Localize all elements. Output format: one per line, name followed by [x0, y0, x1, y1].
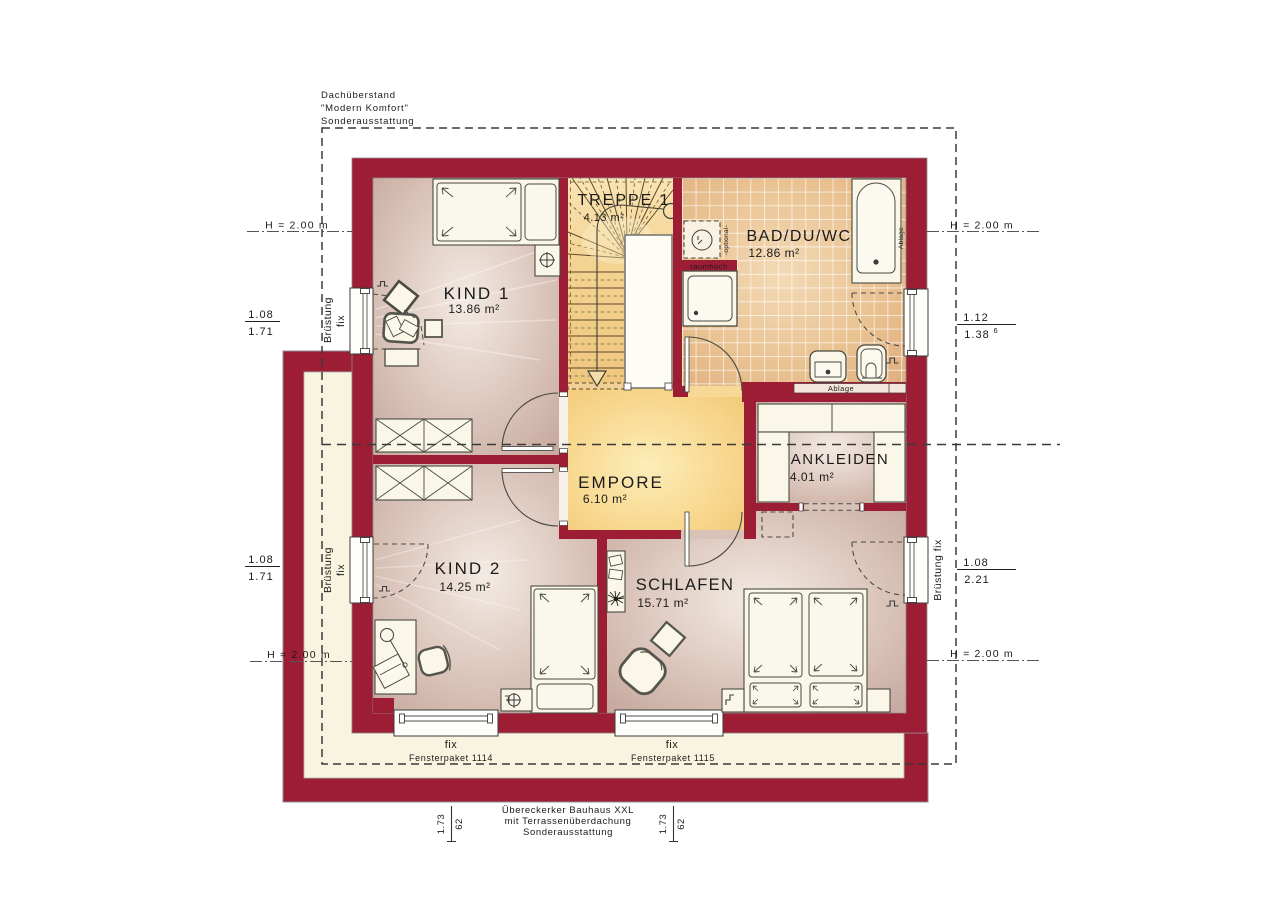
svg-text:Sonderausstattung: Sonderausstattung [523, 827, 613, 838]
svg-text:12.86 m²: 12.86 m² [748, 246, 799, 260]
svg-text:1.12: 1.12 [963, 312, 988, 324]
svg-text:ANKLEIDEN: ANKLEIDEN [791, 451, 890, 468]
svg-text:62: 62 [454, 818, 465, 830]
svg-text:fix: fix [335, 564, 347, 576]
svg-text:62: 62 [676, 818, 687, 830]
svg-text:4.01 m²: 4.01 m² [790, 470, 834, 484]
svg-text:4.13 m²: 4.13 m² [584, 212, 625, 224]
svg-text:Brüstung: Brüstung [322, 297, 334, 343]
svg-text:H = 2.00 m: H = 2.00 m [265, 220, 329, 232]
svg-text:1.08: 1.08 [248, 554, 273, 566]
svg-text:1.73: 1.73 [658, 814, 669, 835]
svg-text:2.21: 2.21 [964, 574, 989, 586]
svg-text:1.73: 1.73 [436, 814, 447, 835]
svg-text:raumhoch: raumhoch [690, 262, 727, 271]
svg-text:Ablage: Ablage [898, 227, 905, 249]
svg-text:H = 2.00 m: H = 2.00 m [950, 220, 1014, 232]
svg-text:1.08: 1.08 [248, 309, 273, 321]
svg-text:Übereckerker Bauhaus XXL: Übereckerker Bauhaus XXL [502, 805, 634, 816]
svg-text:fix: fix [666, 739, 679, 751]
svg-text:"Modern Komfort": "Modern Komfort" [321, 103, 409, 114]
svg-text:1.38: 1.38 [964, 329, 989, 341]
svg-text:fix: fix [445, 739, 458, 751]
svg-text:H = 2.00 m: H = 2.00 m [267, 649, 331, 661]
svg-text:BAD/DU/WC: BAD/DU/WC [746, 228, 851, 245]
svg-text:H = 2.00 m: H = 2.00 m [950, 648, 1014, 660]
svg-text:1.71: 1.71 [248, 571, 273, 583]
svg-text:Dachüberstand: Dachüberstand [321, 90, 396, 101]
svg-text:SCHLAFEN: SCHLAFEN [636, 576, 734, 594]
svg-text:Ablage: Ablage [828, 384, 854, 393]
svg-text:13.86 m²: 13.86 m² [448, 302, 499, 316]
svg-text:EMPORE: EMPORE [578, 473, 664, 492]
svg-text:mit Terrassenüberdachung: mit Terrassenüberdachung [505, 816, 632, 827]
svg-text:KIND 2: KIND 2 [435, 559, 502, 578]
svg-text:6.10 m²: 6.10 m² [583, 492, 627, 506]
svg-text:Brüstung fix: Brüstung fix [932, 539, 944, 601]
svg-text:1.71: 1.71 [248, 326, 273, 338]
svg-text:KIND 1: KIND 1 [444, 284, 511, 303]
svg-text:1.08: 1.08 [963, 557, 988, 569]
svg-text:TREPPE 1: TREPPE 1 [577, 192, 670, 209]
svg-text:fix: fix [335, 315, 347, 327]
svg-text:Brüstung: Brüstung [322, 547, 334, 593]
svg-text:Sonderausstattung: Sonderausstattung [321, 116, 414, 127]
svg-text:6: 6 [994, 326, 998, 335]
svg-text:14.25 m²: 14.25 m² [439, 580, 490, 594]
svg-text:Fensterpaket 1115: Fensterpaket 1115 [631, 753, 715, 763]
svg-text:Fensterpaket 1114: Fensterpaket 1114 [409, 753, 493, 763]
svg-text:-optional-: -optional- [723, 225, 730, 255]
svg-text:15.71 m²: 15.71 m² [637, 596, 688, 610]
